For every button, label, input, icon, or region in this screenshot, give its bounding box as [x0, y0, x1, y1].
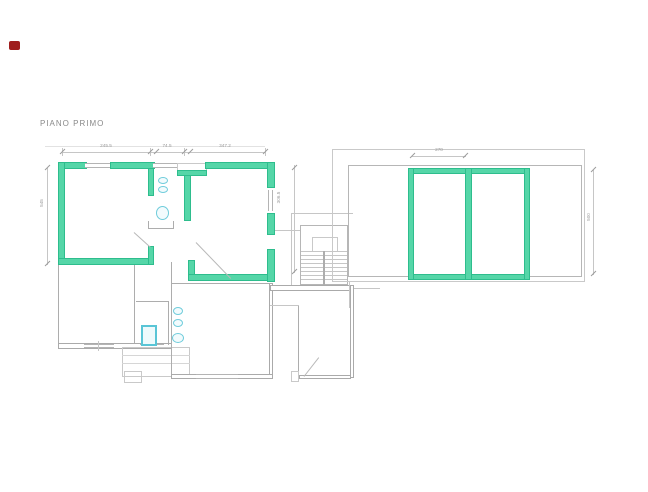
green-wall-segment — [58, 162, 65, 265]
green-wall-segment — [524, 168, 530, 280]
window-tick — [98, 341, 99, 351]
sink-icon — [173, 307, 183, 315]
wall-segment — [58, 265, 59, 345]
wall-segment — [270, 305, 299, 306]
wall-segment — [136, 301, 168, 302]
bidet-icon — [158, 186, 168, 193]
green-wall-segment — [267, 213, 275, 235]
dimension-line-wing-right — [593, 170, 594, 275]
green-wall-segment — [408, 168, 414, 280]
dimension-label: 500 — [587, 213, 592, 221]
wall-segment — [172, 283, 269, 284]
wall-segment — [298, 306, 299, 378]
window — [84, 344, 114, 348]
green-wall-segment — [267, 162, 275, 188]
wall-segment — [299, 375, 351, 379]
bidet-icon — [173, 319, 183, 327]
wall-segment — [173, 221, 174, 229]
wall-segment — [168, 301, 169, 345]
green-wall-segment — [205, 162, 275, 169]
dimension-tick — [292, 269, 298, 275]
dimension-label: 245.5 — [90, 144, 121, 149]
step-outline — [124, 371, 142, 383]
step-outline — [291, 371, 299, 382]
wall-segment — [354, 288, 380, 289]
wall-segment — [134, 265, 135, 343]
toilet-icon — [156, 206, 169, 220]
step-line — [122, 363, 190, 364]
green-wall-segment — [148, 168, 154, 196]
window — [268, 190, 273, 211]
dimension-line-top — [62, 152, 265, 153]
toilet-icon — [172, 333, 184, 343]
dimension-label: 270 — [423, 148, 456, 153]
dimension-label: 306.5 — [277, 192, 282, 204]
wall-segment — [171, 262, 172, 378]
door-leaf — [134, 232, 151, 247]
step-line — [122, 355, 190, 356]
dimension-line-wing-top — [412, 156, 466, 157]
wall-segment — [270, 285, 354, 291]
window — [196, 374, 238, 379]
sink-icon — [158, 177, 168, 184]
stair-stringer — [323, 251, 325, 285]
dimension-label: 347.2 — [208, 144, 242, 149]
green-wall-segment — [184, 175, 191, 221]
wall-segment — [148, 228, 174, 229]
green-wall-segment — [177, 170, 207, 176]
window — [85, 163, 112, 168]
wall-segment — [291, 213, 292, 285]
dimension-tick — [591, 271, 597, 277]
floor-plan: 245.5 74.5 347.2 545 306.5 — [0, 0, 648, 492]
wall-segment — [269, 283, 273, 378]
dimension-label: 545 — [40, 199, 45, 207]
window — [153, 163, 178, 168]
dimension-tick — [45, 261, 51, 267]
green-wall-segment — [148, 246, 154, 265]
wall-segment — [349, 282, 350, 308]
green-wall-segment — [465, 168, 472, 280]
dimension-line-left — [47, 168, 48, 265]
door-leaf — [304, 357, 320, 377]
green-wall-segment — [58, 258, 154, 265]
dimension-label: 74.5 — [153, 144, 181, 149]
green-wall-segment — [267, 249, 275, 282]
wall-segment — [275, 230, 301, 231]
shower-icon — [141, 325, 157, 346]
wall-segment — [350, 285, 354, 378]
dimension-line-inner-right — [294, 165, 295, 273]
